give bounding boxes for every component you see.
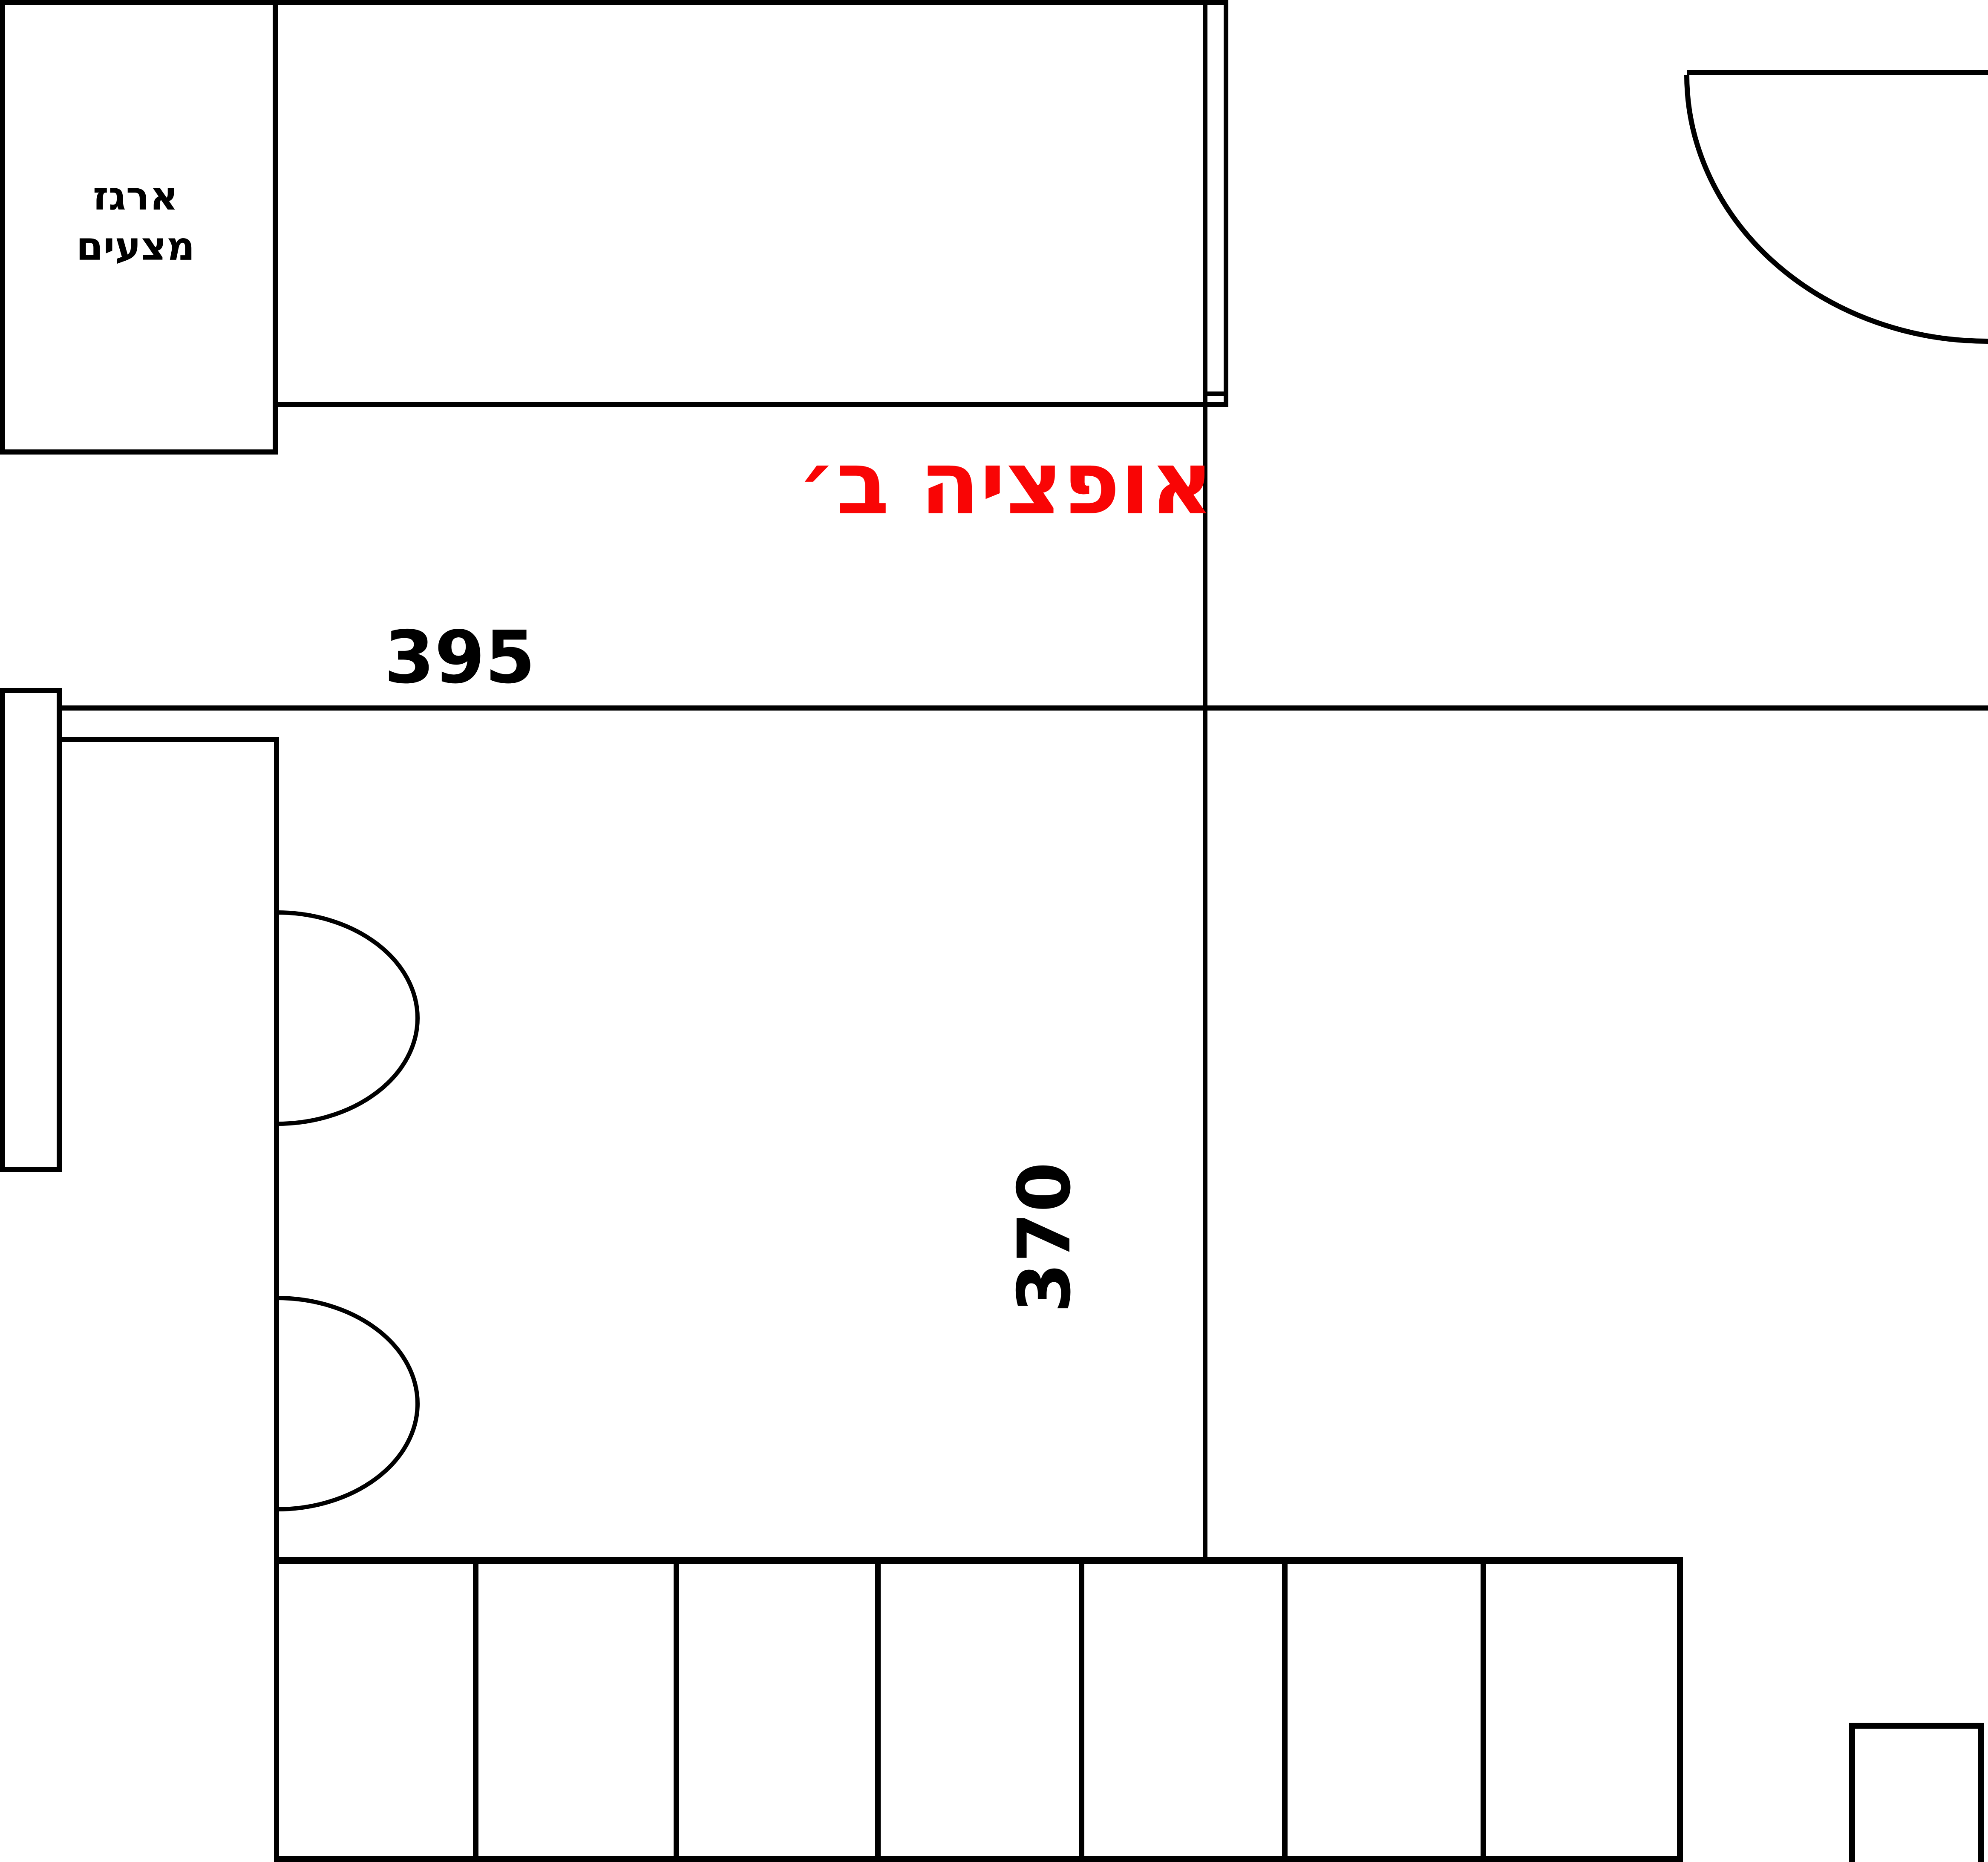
wardrobe-partition-4 — [1079, 1559, 1084, 1862]
wardrobe-right-edge — [1677, 1557, 1683, 1862]
floor-plan-page: ארגז מצעים אופציה ב׳ 395 370 — [0, 0, 1988, 1862]
floor-plan-canvas: ארגז מצעים אופציה ב׳ 395 370 — [0, 0, 1988, 1862]
linen-box-label-line2: מצעים — [76, 224, 195, 269]
bed-right-cap — [1204, 391, 1228, 396]
desk-top-edge — [62, 737, 279, 742]
bed-right-outer-line — [1224, 0, 1228, 407]
bed-bottom-edge — [277, 402, 1228, 407]
room-divider-wall — [1203, 0, 1207, 1560]
dimension-height-370: 370 — [1003, 1162, 1087, 1313]
wardrobe-top-edge — [274, 1557, 1683, 1564]
chair-arc-bottom — [277, 1298, 418, 1509]
wardrobe-partition-3 — [875, 1559, 881, 1862]
left-wall-pier — [3, 691, 59, 1169]
wardrobe-partition-5 — [1282, 1559, 1288, 1862]
wardrobe-partition-2 — [674, 1559, 679, 1862]
wardrobe-bottom-edge — [274, 1856, 1683, 1862]
door-header-line — [1687, 70, 1988, 75]
wardrobe-partition-6 — [1481, 1559, 1486, 1862]
room-top-wall-395 — [62, 705, 1988, 711]
wardrobe-partition-1 — [473, 1559, 478, 1862]
walls-and-furniture-layer — [0, 0, 1988, 1862]
dimension-width-395: 395 — [384, 616, 536, 700]
option-title: אופציה ב׳ — [798, 433, 1214, 534]
chair-arc-top — [277, 912, 418, 1124]
door-swing-arc — [1687, 75, 1988, 341]
bottom-right-box — [1852, 1726, 1981, 1862]
linen-box-label-line1: ארגז — [93, 173, 178, 219]
